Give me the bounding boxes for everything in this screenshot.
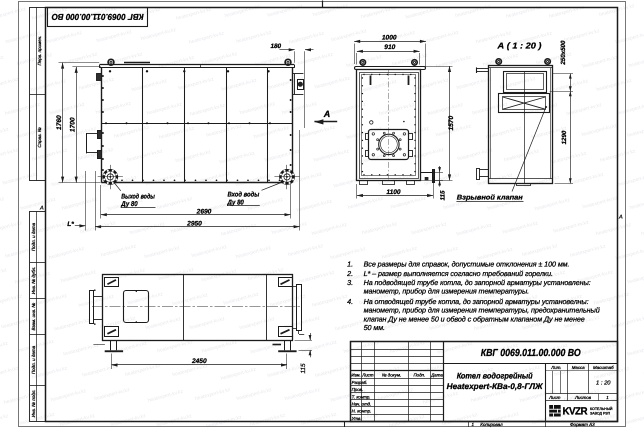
svg-text:Масса: Масса (572, 365, 586, 370)
svg-text:2690: 2690 (196, 208, 212, 215)
svg-text:1.: 1. (347, 260, 353, 269)
svg-text:Подп. и дата: Подп. и дата (31, 222, 36, 251)
svg-text:115: 115 (440, 190, 447, 200)
svg-text:4.: 4. (347, 297, 353, 306)
svg-text:Ду 80: Ду 80 (120, 201, 137, 208)
svg-text:Перв. примен.: Перв. примен. (37, 36, 42, 66)
svg-text:Нач. отд.: Нач. отд. (352, 402, 372, 407)
svg-text:Формат А3: Формат А3 (570, 422, 595, 427)
svg-text:Справ. №: Справ. № (37, 127, 42, 148)
svg-text:2950: 2950 (186, 220, 202, 227)
svg-text:ЗАВОД РЗП: ЗАВОД РЗП (590, 412, 610, 416)
svg-text:клапан Ду не менее 50 и обвод: клапан Ду не менее 50 и обвод с обратным… (364, 314, 585, 323)
svg-text:Котел водогрейный: Котел водогрейный (457, 371, 533, 380)
svg-text:Инв. № дубл.: Инв. № дубл. (31, 267, 36, 295)
svg-text:манометр, прибор для измерения: манометр, прибор для измерения температу… (364, 287, 530, 296)
svg-text:L* – размер выполняется соглас: L* – размер выполняется согласно требова… (364, 269, 553, 278)
svg-text:1000: 1000 (382, 35, 397, 42)
svg-text:Н. контр.: Н. контр. (352, 409, 372, 414)
svg-text:1760: 1760 (56, 115, 63, 130)
svg-text:А: А (39, 205, 44, 211)
svg-text:Вход воды: Вход воды (228, 191, 260, 198)
svg-text:Взам. инв. №: Взам. инв. № (31, 303, 36, 331)
svg-text:Подп. и дата: Подп. и дата (31, 345, 36, 374)
svg-text:Пров.: Пров. (352, 387, 364, 392)
svg-text:А ( 1 : 20 ): А ( 1 : 20 ) (496, 41, 541, 51)
svg-text:1700: 1700 (69, 117, 76, 132)
svg-text:L*: L* (67, 221, 74, 228)
svg-text:Лист: Лист (548, 395, 561, 400)
svg-text:1 : 20: 1 : 20 (596, 380, 611, 387)
svg-text:Копировал: Копировал (480, 422, 503, 427)
svg-text:КОТЕЛЬНЫЙ: КОТЕЛЬНЫЙ (590, 406, 613, 411)
svg-text:№ докум.: № докум. (382, 372, 401, 377)
svg-text:2.: 2. (346, 269, 353, 278)
svg-text:Изм.: Изм. (351, 372, 360, 377)
svg-text:А: А (618, 214, 623, 220)
svg-text:Взрывной клапан: Взрывной клапан (457, 194, 524, 202)
svg-text:Разраб.: Разраб. (352, 380, 368, 385)
svg-text:2450: 2450 (191, 358, 207, 365)
svg-text:KVZR: KVZR (563, 405, 588, 417)
svg-text:Масштаб: Масштаб (593, 365, 614, 370)
svg-text:Утв.: Утв. (352, 416, 362, 421)
svg-text:3.: 3. (347, 278, 353, 287)
svg-text:250х500: 250х500 (560, 40, 567, 66)
svg-text:КВГ 0069.011.00.000 ВО: КВГ 0069.011.00.000 ВО (481, 348, 581, 359)
svg-text:Т. контр.: Т. контр. (352, 394, 371, 399)
svg-text:Листов: Листов (574, 395, 592, 400)
svg-text:Инв. № подл.: Инв. № подл. (31, 389, 36, 417)
svg-text:1570: 1570 (448, 116, 455, 131)
svg-text:Heatexpert-КВа-0,8-ГЛЖ: Heatexpert-КВа-0,8-ГЛЖ (447, 382, 543, 391)
svg-text:910: 910 (384, 44, 395, 51)
svg-text:50 мм.: 50 мм. (364, 323, 385, 332)
svg-text:180: 180 (270, 43, 281, 50)
svg-text:Подп.: Подп. (413, 372, 425, 377)
svg-text:КВГ 0069.011.00.000 ВО: КВГ 0069.011.00.000 ВО (51, 12, 143, 22)
svg-text:1290: 1290 (561, 130, 568, 144)
svg-text:Лит.: Лит. (550, 365, 561, 370)
svg-text:1100: 1100 (386, 189, 401, 196)
svg-text:Лист: Лист (361, 372, 374, 377)
svg-text:115: 115 (300, 363, 307, 373)
svg-text:Все размеры для справок, допус: Все размеры для справок, допустимые откл… (364, 260, 570, 269)
svg-text:Дата: Дата (430, 372, 443, 377)
svg-text:А: А (323, 109, 331, 119)
svg-text:Выход воды: Выход воды (121, 193, 155, 200)
